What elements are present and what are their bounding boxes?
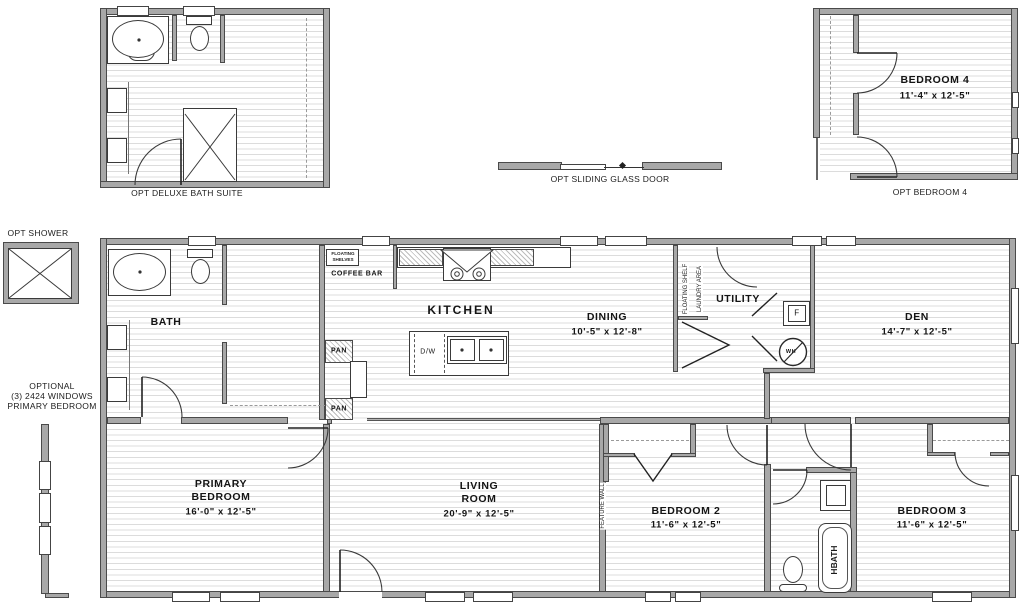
range-hood bbox=[441, 250, 493, 272]
shower-x-lines bbox=[9, 114, 235, 298]
pantry-label-lower: PAN bbox=[331, 406, 347, 413]
bedroom2-label: BEDROOM 2 bbox=[652, 505, 721, 517]
opt-sliding-door-label: OPT SLIDING GLASS DOOR bbox=[551, 174, 670, 184]
door-arcs bbox=[135, 53, 989, 592]
floor-plan-canvas: OPT DELUXE BATH SUITE OPT SLIDING GLASS … bbox=[0, 0, 1021, 603]
bedroom4-name: BEDROOM 4 bbox=[901, 74, 970, 86]
kitchen-label: KITCHEN bbox=[427, 303, 494, 317]
faucet-dot bbox=[138, 270, 141, 273]
floating-shelf-note: FLOATING SHELF bbox=[683, 263, 689, 316]
dining-label: DINING bbox=[587, 311, 627, 323]
utility-label: UTILITY bbox=[716, 293, 760, 305]
bedroom3-dims: 11'-6" x 12'-5" bbox=[897, 520, 968, 531]
burner bbox=[451, 268, 463, 280]
living-room-label-1: LIVING bbox=[460, 480, 499, 492]
dining-dims: 10'-5" x 12'-8" bbox=[571, 327, 642, 338]
bath-label: BATH bbox=[151, 316, 182, 328]
bedroom4-dims: 11'-4" x 12'-5" bbox=[900, 91, 971, 102]
bedroom2-dims: 11'-6" x 12'-5" bbox=[651, 520, 722, 531]
living-room-label-2: ROOM bbox=[461, 493, 496, 505]
optional-windows-line3: PRIMARY BEDROOM bbox=[7, 401, 96, 411]
opt-shower-label: OPT SHOWER bbox=[8, 228, 69, 238]
hbath-label: HBATH bbox=[829, 544, 839, 575]
primary-bedroom-label-1: PRIMARY bbox=[195, 478, 247, 490]
living-room-dims: 20'-9" x 12'-5" bbox=[443, 509, 514, 520]
bifold-doors bbox=[634, 293, 777, 481]
faucet-dot bbox=[489, 348, 492, 351]
faucet-dot bbox=[460, 348, 463, 351]
furnace-label: F bbox=[794, 309, 800, 318]
opt-deluxe-bath-label: OPT DELUXE BATH SUITE bbox=[131, 188, 243, 198]
pantry-label-upper: PAN bbox=[331, 348, 347, 355]
laundry-area-note: LAUNDRY AREA bbox=[697, 265, 703, 313]
floating-shelves-line2: SHELVES bbox=[328, 257, 358, 263]
primary-bedroom-dims: 16'-0" x 12'-5" bbox=[185, 507, 256, 518]
optional-windows-line1: OPTIONAL bbox=[29, 381, 74, 391]
feature-wall-note: FEATURE WALL bbox=[600, 482, 606, 529]
dishwasher-label: D/W bbox=[420, 349, 435, 356]
burner bbox=[473, 268, 485, 280]
opt-bedroom4-label: OPT BEDROOM 4 bbox=[893, 187, 968, 197]
optional-windows-line2: (3) 2424 WINDOWS bbox=[11, 391, 93, 401]
bedroom3-label: BEDROOM 3 bbox=[898, 505, 967, 517]
primary-bedroom-label-2: BEDROOM bbox=[191, 491, 250, 503]
den-label: DEN bbox=[905, 311, 929, 323]
faucet-dot bbox=[137, 38, 140, 41]
den-dims: 14'-7" x 12'-5" bbox=[881, 327, 952, 338]
floating-shelves-note: FLOATING SHELVES bbox=[328, 251, 358, 263]
coffee-bar-label: COFFEE BAR bbox=[331, 271, 383, 278]
water-heater-label: WH bbox=[786, 349, 796, 355]
